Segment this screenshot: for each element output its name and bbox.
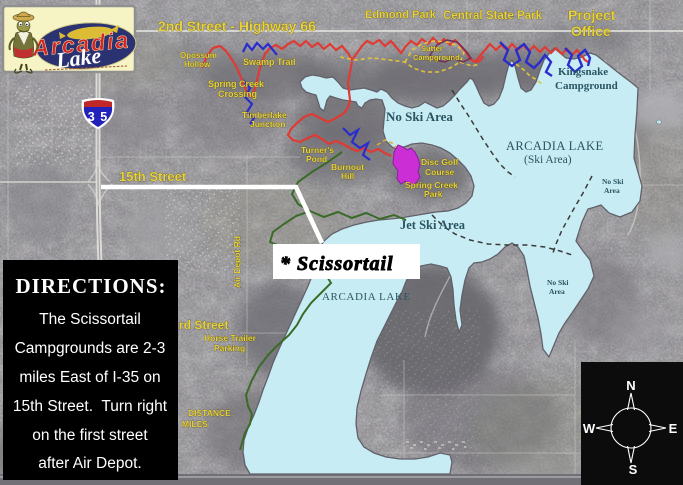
svg-text:on the first street: on the first street bbox=[32, 427, 148, 444]
svg-text:Edmond Park: Edmond Park bbox=[365, 9, 437, 21]
svg-text:Pond: Pond bbox=[306, 154, 327, 164]
svg-text:Hollow: Hollow bbox=[184, 60, 211, 69]
svg-text:MILES: MILES bbox=[182, 419, 208, 429]
svg-text:Swamp Trail: Swamp Trail bbox=[243, 57, 296, 67]
svg-text:The Scissortail: The Scissortail bbox=[39, 311, 141, 328]
svg-text:Campground: Campground bbox=[555, 80, 618, 92]
svg-text:ARCADIA LAKE: ARCADIA LAKE bbox=[506, 139, 604, 153]
svg-text:Campground: Campground bbox=[413, 53, 460, 62]
svg-text:E: E bbox=[669, 421, 678, 436]
svg-text:15th Street. Turn right: 15th Street. Turn right bbox=[13, 398, 168, 415]
svg-text:No Ski: No Ski bbox=[602, 177, 623, 186]
svg-text:DIRECTIONS:: DIRECTIONS: bbox=[15, 274, 166, 298]
svg-text:after Air Depot.: after Air Depot. bbox=[38, 455, 141, 472]
svg-text:Air Depot Rd: Air Depot Rd bbox=[232, 236, 242, 288]
svg-text:* Scissortail: * Scissortail bbox=[280, 253, 394, 275]
svg-text:ARCADIA LAKE: ARCADIA LAKE bbox=[322, 291, 411, 303]
svg-text:Area: Area bbox=[549, 287, 565, 296]
svg-text:3 5: 3 5 bbox=[88, 110, 108, 124]
svg-text:Central State Park: Central State Park bbox=[443, 10, 543, 22]
svg-text:(Ski Area): (Ski Area) bbox=[524, 154, 572, 166]
svg-text:Project: Project bbox=[568, 7, 616, 23]
svg-text:Parking: Parking bbox=[214, 343, 245, 353]
svg-text:Area: Area bbox=[604, 186, 620, 195]
svg-text:rd Street: rd Street bbox=[179, 318, 228, 332]
svg-text:Park: Park bbox=[424, 189, 443, 199]
svg-text:Horse Trailer: Horse Trailer bbox=[204, 333, 257, 343]
svg-text:Sutter: Sutter bbox=[421, 44, 443, 53]
svg-text:miles East of I-35 on: miles East of I-35 on bbox=[19, 369, 160, 386]
svg-text:Campgrounds are 2-3: Campgrounds are 2-3 bbox=[15, 340, 166, 357]
svg-text:Hill: Hill bbox=[341, 171, 354, 181]
svg-text:15th Street: 15th Street bbox=[119, 169, 187, 184]
svg-text:Office: Office bbox=[571, 23, 611, 39]
svg-text:Junction: Junction bbox=[250, 119, 285, 129]
svg-text:Opossum: Opossum bbox=[180, 51, 217, 60]
svg-text:Course: Course bbox=[425, 167, 455, 177]
svg-text:S: S bbox=[629, 462, 638, 477]
svg-text:Disc Golf: Disc Golf bbox=[421, 157, 458, 167]
svg-text:Spring Creek: Spring Creek bbox=[208, 79, 265, 89]
svg-text:Crossing: Crossing bbox=[218, 89, 257, 99]
svg-text:N: N bbox=[626, 378, 635, 393]
svg-text:Jet Ski Area: Jet Ski Area bbox=[400, 218, 466, 232]
svg-text:2nd Street - Highway 66: 2nd Street - Highway 66 bbox=[158, 18, 316, 34]
svg-text:No Ski: No Ski bbox=[547, 278, 568, 287]
svg-text:W: W bbox=[583, 421, 596, 436]
svg-text:DISTANCE: DISTANCE bbox=[188, 408, 231, 418]
svg-text:No Ski Area: No Ski Area bbox=[386, 109, 453, 124]
svg-text:Kingsnake: Kingsnake bbox=[558, 66, 608, 78]
